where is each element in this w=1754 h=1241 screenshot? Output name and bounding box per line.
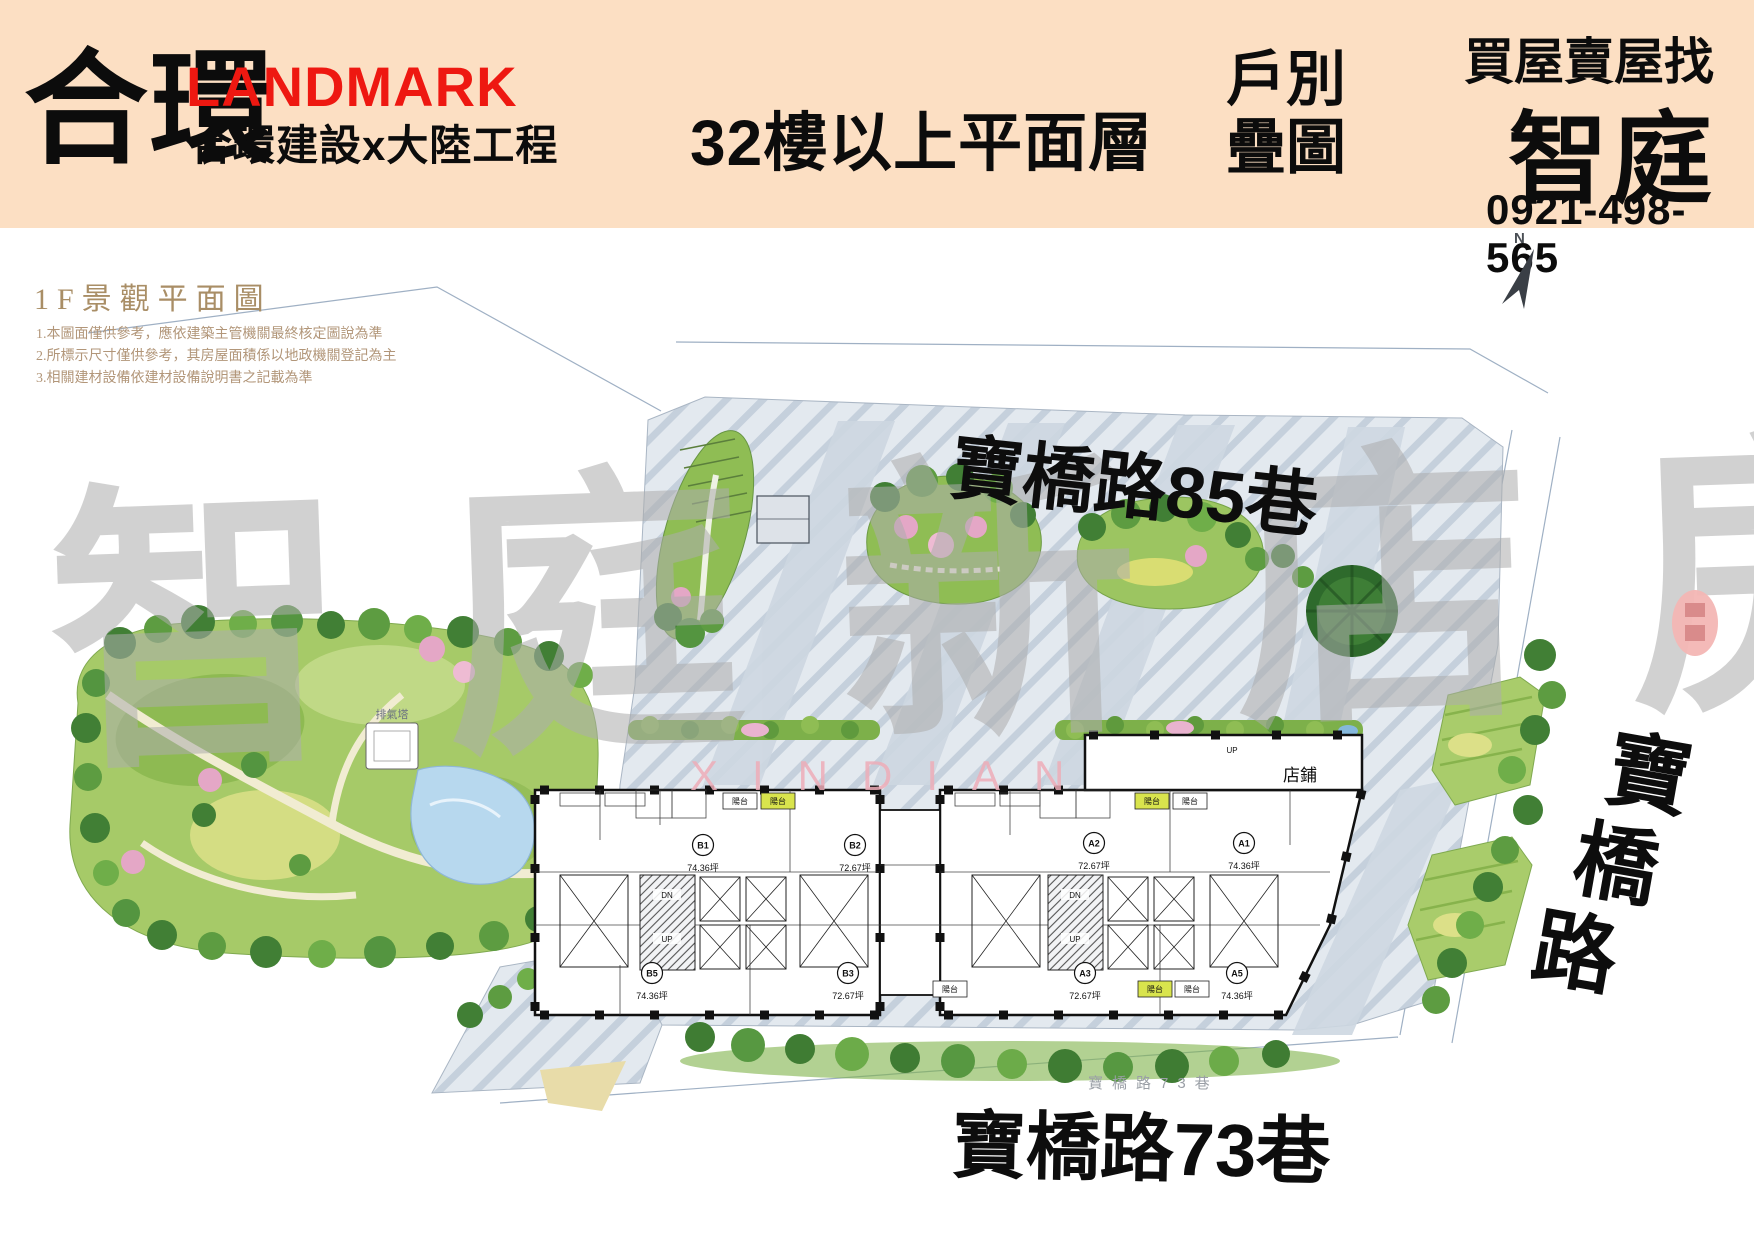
balcony-text: 陽台 [1144, 796, 1160, 806]
unit-area: 72.67坪 [1078, 861, 1110, 871]
unit-area: 74.36坪 [1228, 861, 1260, 871]
compass: N [1498, 230, 1562, 316]
stair-dn-label: DN [1069, 891, 1081, 900]
unit-id: A2 [1088, 839, 1100, 849]
page-title: 32樓以上平面層 [690, 92, 1153, 184]
street-label-baoqiao-73: 寶橋路73巷 [951, 1086, 1331, 1200]
building-west-wing [535, 790, 880, 1015]
balcony-text: 陽台 [942, 984, 958, 994]
plan-note-2: 2.所標示尺寸僅供參考，其房屋面積係以地政機關登記為主 [36, 346, 397, 368]
balcony-label: 陽台 [1135, 793, 1169, 809]
unit-area: 74.36坪 [636, 991, 668, 1001]
plan-note-3: 3.相關建材設備依建材設備說明書之記載為準 [36, 368, 397, 390]
shop-label: 店鋪 [1283, 766, 1317, 785]
header-banner: 合環 LANDMARK 合環建設x大陸工程 32樓以上平面層 戶別 疊圖 買屋賣… [0, 0, 1754, 228]
stair-up-label: UP [661, 935, 672, 944]
balcony-text: 陽台 [732, 796, 748, 806]
compass-north-label: N [1514, 230, 1562, 247]
unit-area: 74.36坪 [1221, 991, 1253, 1001]
balcony-text: 陽台 [1147, 984, 1163, 994]
plan-notes: 1.本圖面僅供參考，應依建築主管機關最終核定圖說為準 2.所標示尺寸僅供參考，其… [36, 324, 397, 390]
south-street-trees [680, 1022, 1340, 1083]
building-connector [880, 810, 940, 995]
unit-id: A1 [1238, 839, 1250, 849]
balcony-label: 陽台 [933, 981, 967, 997]
unit-id: B2 [849, 841, 861, 851]
balcony-label: 陽台 [761, 793, 795, 809]
title-stack: 戶別 疊圖 [1226, 46, 1346, 182]
unit-id: A3 [1079, 969, 1091, 979]
balcony-text: 陽台 [1182, 796, 1198, 806]
title-stack-line2: 疊圖 [1226, 114, 1346, 182]
unit-area: 72.67坪 [839, 863, 871, 873]
balcony-text: 陽台 [1184, 984, 1200, 994]
balcony-label: 陽台 [723, 793, 757, 809]
title-stack-line1: 戶別 [1226, 46, 1346, 114]
unit-area: 72.67坪 [1069, 991, 1101, 1001]
red-seal-stamp [1672, 590, 1718, 656]
unit-area: 72.67坪 [832, 991, 864, 1001]
flyer-page: { "header": { "brand": { "name": "合環", "… [0, 0, 1754, 1241]
balcony-label: 陽台 [1138, 981, 1172, 997]
stair-dn-label: DN [661, 891, 673, 900]
balcony-label: 陽台 [1173, 793, 1207, 809]
balcony-text: 陽台 [770, 796, 786, 806]
brand-companies: 合環建設x大陸工程 [190, 112, 558, 173]
unit-id: B3 [842, 969, 854, 979]
unit-id: B5 [646, 969, 658, 979]
section-title: 1F景觀平面圖 [34, 274, 272, 318]
brand-subname: LANDMARK [186, 54, 518, 119]
plan-note-1: 1.本圖面僅供參考，應依建築主管機關最終核定圖說為準 [36, 324, 397, 346]
unit-id: A5 [1231, 969, 1243, 979]
balcony-label: 陽台 [1175, 981, 1209, 997]
north-arrow-icon [1498, 248, 1544, 310]
unit-id: B1 [697, 841, 709, 851]
unit-area: 74.36坪 [687, 863, 719, 873]
stair-up-label: UP [1069, 935, 1080, 944]
agency-watermark-latin: XINDIAN [690, 752, 1098, 799]
